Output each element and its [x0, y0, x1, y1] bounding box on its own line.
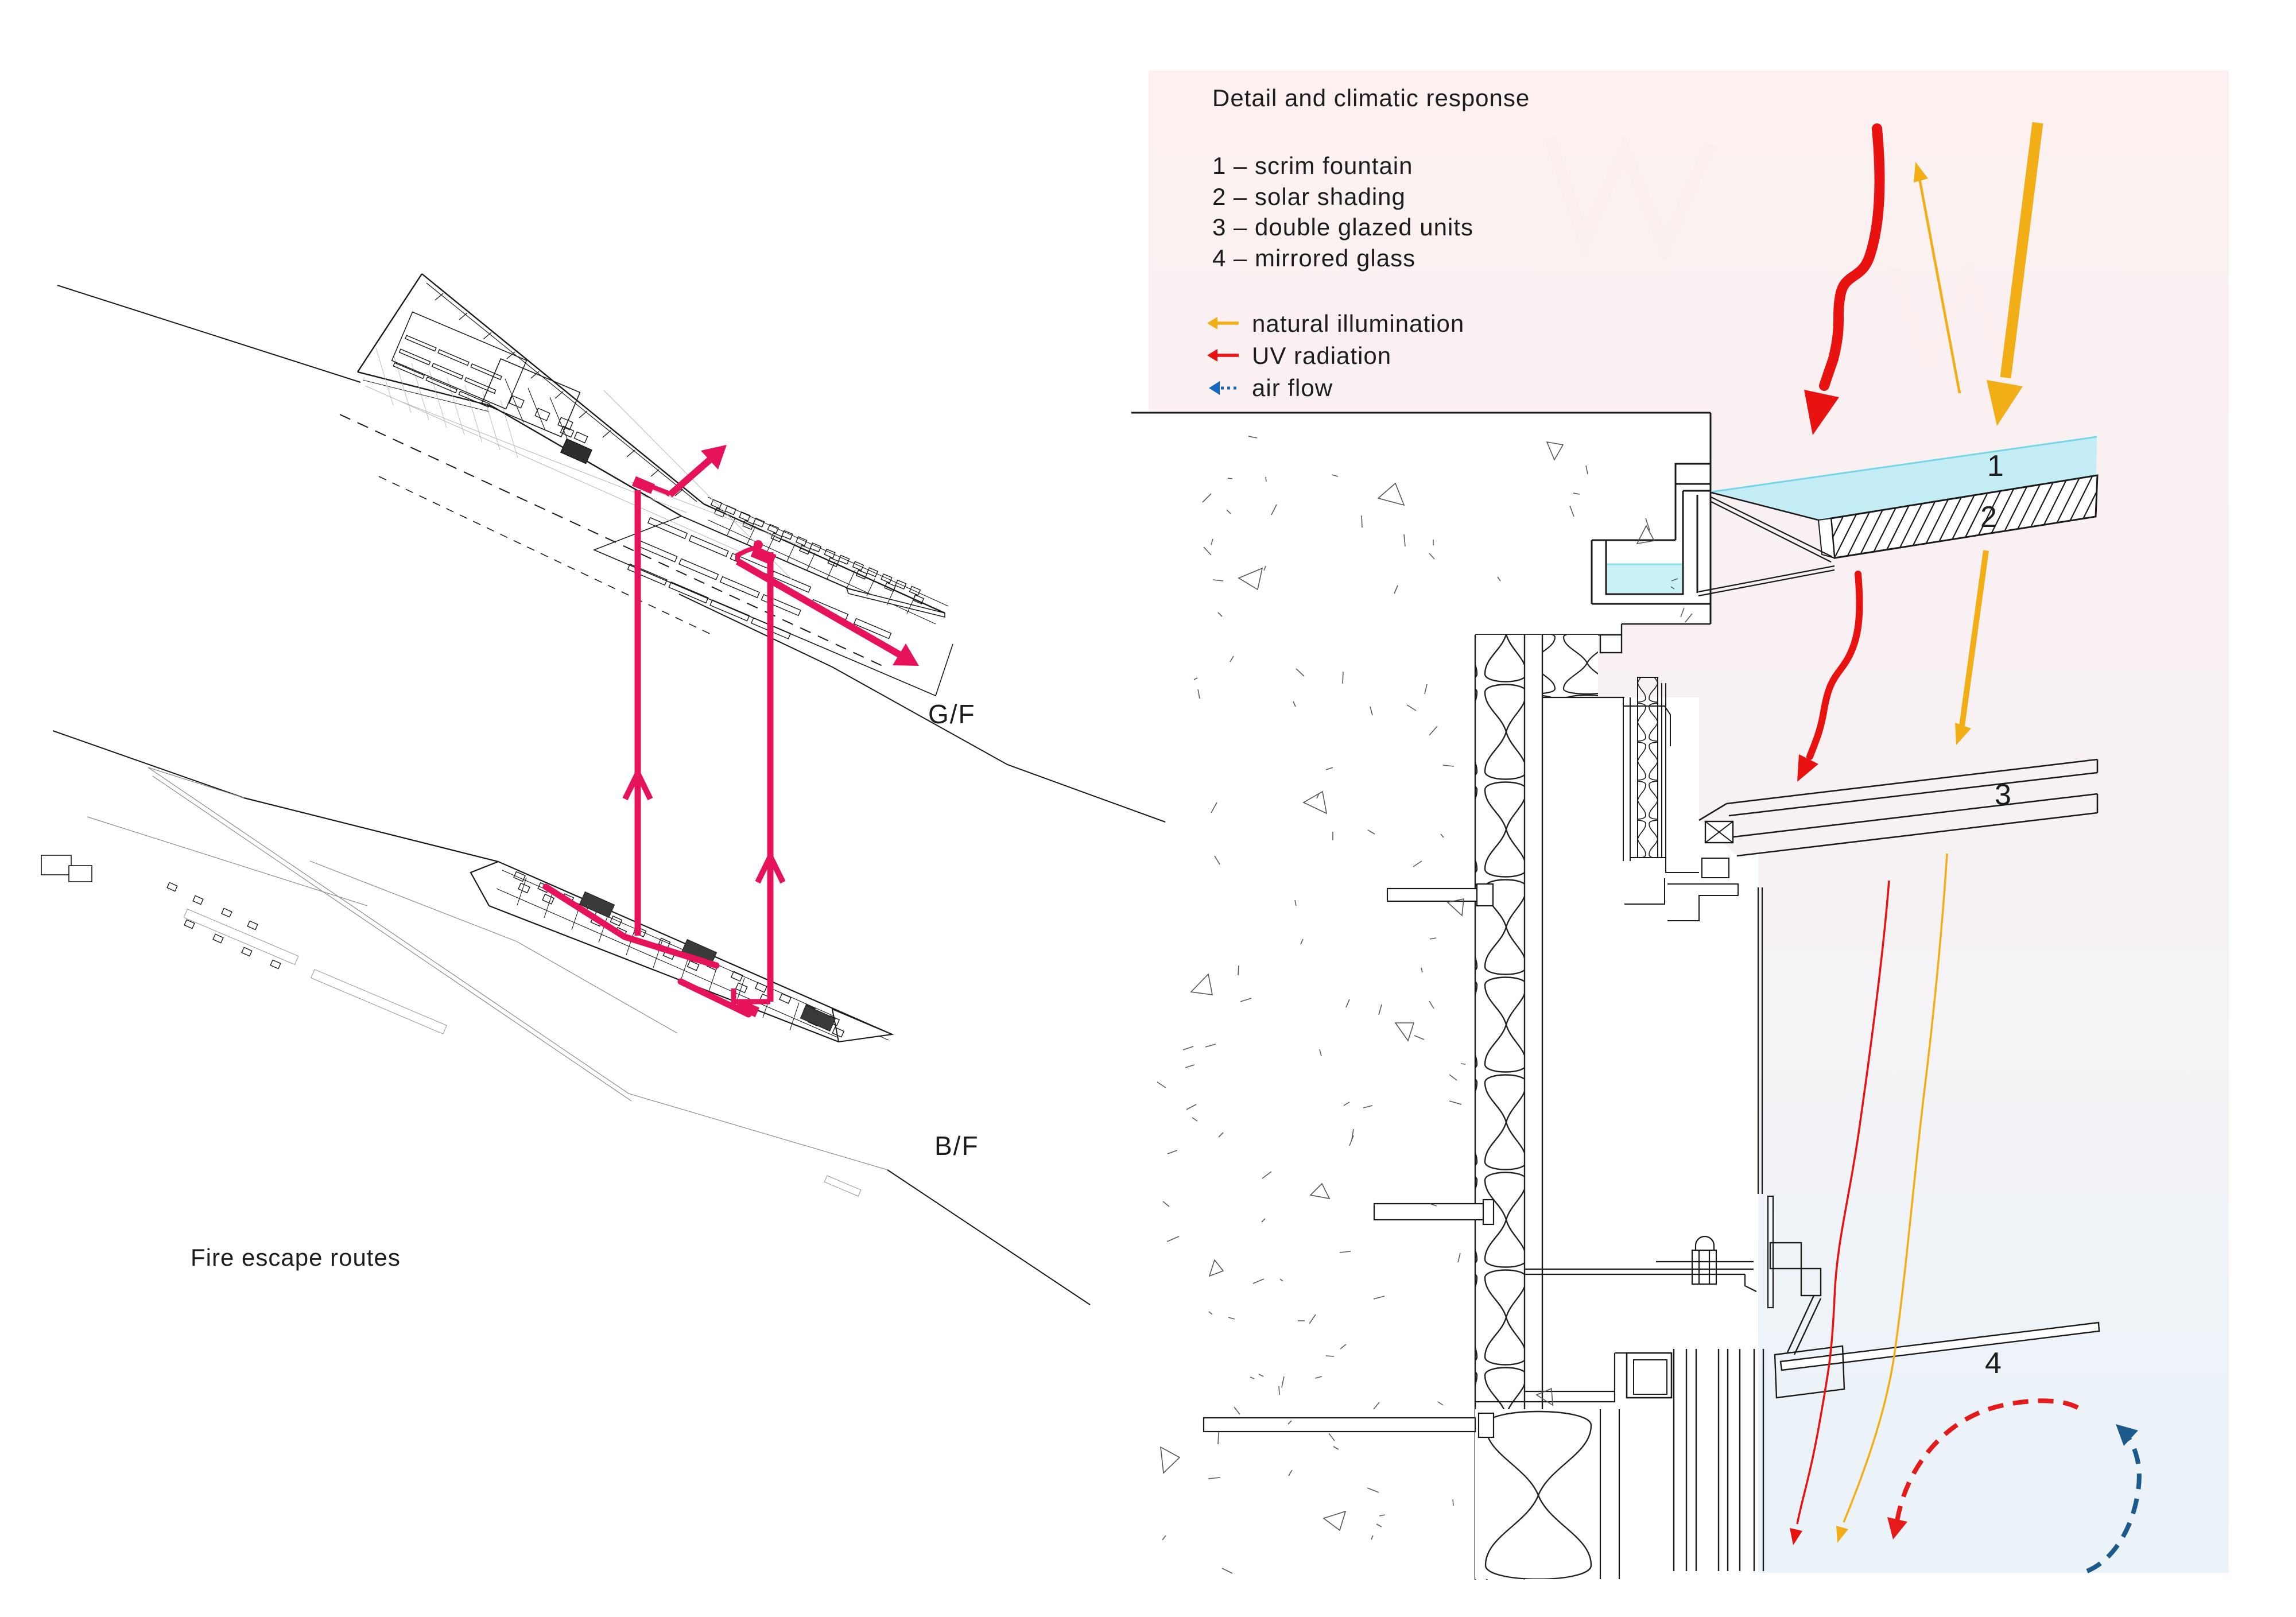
svg-text:Fire escape routes: Fire escape routes	[191, 1244, 401, 1271]
svg-text:4 – mirrored glass: 4 – mirrored glass	[1212, 245, 1415, 272]
svg-text:air flow: air flow	[1252, 374, 1333, 401]
svg-text:4: 4	[1985, 1347, 2002, 1380]
svg-text:natural illumination: natural illumination	[1252, 310, 1464, 337]
svg-text:2: 2	[1980, 501, 1997, 534]
svg-text:UV radiation: UV radiation	[1252, 342, 1391, 369]
svg-text:1: 1	[1987, 449, 2004, 483]
svg-text:B/F: B/F	[934, 1131, 979, 1161]
svg-text:1 – scrim fountain: 1 – scrim fountain	[1212, 152, 1413, 179]
svg-text:3 – double glazed units: 3 – double glazed units	[1212, 214, 1473, 241]
svg-text:3: 3	[1995, 778, 2011, 812]
svg-text:2 – solar shading: 2 – solar shading	[1212, 183, 1406, 210]
svg-text:G/F: G/F	[928, 699, 976, 729]
svg-text:Detail and climatic response: Detail and climatic response	[1212, 84, 1530, 111]
